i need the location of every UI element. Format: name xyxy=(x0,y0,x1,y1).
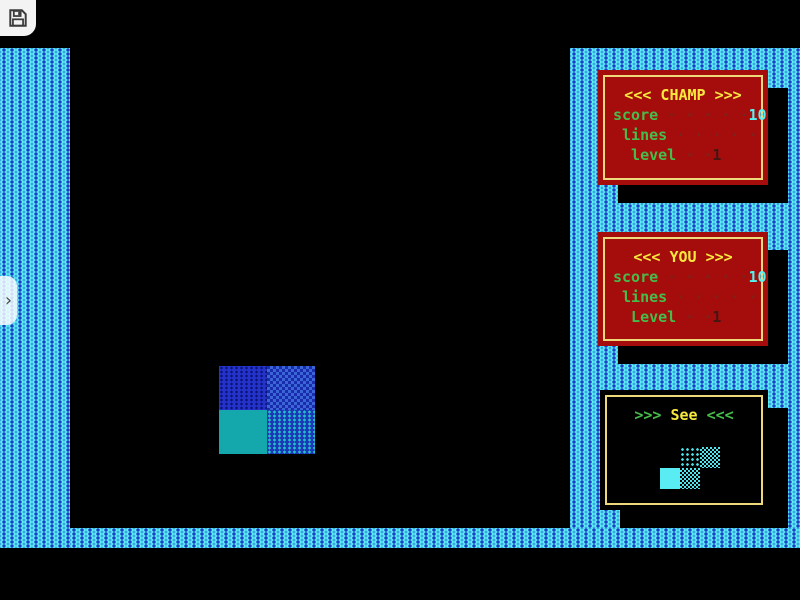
you-score-dots: · · · · · xyxy=(658,268,748,286)
falling-piece xyxy=(219,366,315,454)
bottom-wall xyxy=(70,528,800,548)
champ-score-dots: · · · · · xyxy=(658,106,748,124)
piece-cell-top-right xyxy=(267,366,315,410)
you-score-value: 10 xyxy=(748,268,766,286)
champ-panel: <<< CHAMP >>> score · · · · ·10 lines · … xyxy=(598,70,768,185)
you-level-dots: · · xyxy=(676,308,712,326)
floppy-disk-icon xyxy=(7,7,29,29)
champ-lines-label: lines xyxy=(613,126,667,144)
champ-score-value: 10 xyxy=(748,106,766,124)
champ-level-label: level xyxy=(613,146,676,164)
next-piece-cell-top-left xyxy=(680,447,700,468)
you-level-label: Level xyxy=(613,308,676,326)
you-panel: <<< YOU >>> score · · · · ·10 lines · · … xyxy=(598,232,768,346)
see-title-left-arrows: >>> xyxy=(634,406,670,424)
champ-level-row: level · ·1 xyxy=(598,145,768,165)
champ-lines-dots: · · · · · xyxy=(667,126,757,144)
you-panel-title: <<< YOU >>> xyxy=(598,247,768,267)
piece-cell-bottom-left xyxy=(219,410,267,454)
see-title-word: See xyxy=(670,406,697,424)
next-piece-panel: >>> See <<< xyxy=(600,390,768,510)
champ-score-label: score xyxy=(613,106,658,124)
next-piece-cell-top-right xyxy=(700,447,720,468)
piece-cell-top-left xyxy=(219,366,267,410)
champ-score-row: score · · · · ·10 xyxy=(598,105,768,125)
next-piece-panel-title: >>> See <<< xyxy=(600,405,768,425)
champ-panel-title: <<< CHAMP >>> xyxy=(598,85,768,105)
you-level-row: Level · ·1 xyxy=(598,307,768,327)
sidebar-drawer-handle[interactable]: › xyxy=(0,276,17,325)
next-piece-cell-bottom-left xyxy=(660,468,680,489)
you-score-label: score xyxy=(613,268,658,286)
you-lines-dots: · · · · · xyxy=(667,288,757,306)
you-score-row: score · · · · ·10 xyxy=(598,267,768,287)
save-button[interactable] xyxy=(0,0,36,36)
champ-level-value: 1 xyxy=(712,146,721,164)
you-lines-row: lines · · · · · xyxy=(598,287,768,307)
playfield xyxy=(70,48,570,528)
you-level-value: 1 xyxy=(712,308,721,326)
champ-lines-row: lines · · · · · xyxy=(598,125,768,145)
champ-level-dots: · · xyxy=(676,146,712,164)
piece-cell-bottom-right xyxy=(267,410,315,454)
you-lines-label: lines xyxy=(613,288,667,306)
see-title-right-arrows: <<< xyxy=(698,406,734,424)
chevron-right-icon: › xyxy=(5,292,12,310)
next-piece-cell-bottom-right xyxy=(680,468,700,489)
game-screen: <<< CHAMP >>> score · · · · ·10 lines · … xyxy=(0,0,800,600)
